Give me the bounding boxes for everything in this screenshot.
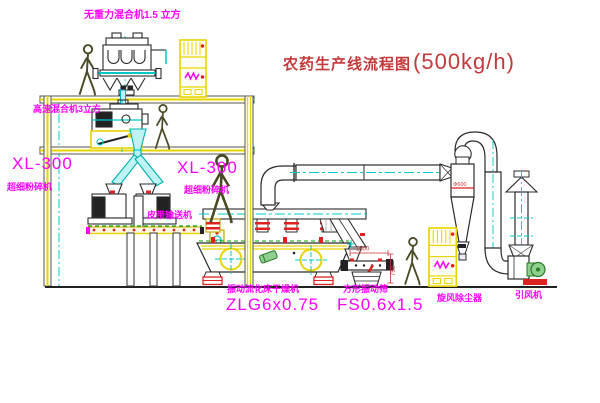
y-chute bbox=[112, 150, 163, 186]
cyclone-diameter-dim: Φ600 bbox=[453, 182, 467, 188]
flow-diagram: Φ600 bbox=[0, 0, 600, 403]
label-high-speed-mixer: 高速混合机3立方 bbox=[33, 105, 101, 114]
title-text: 农药生产线流程图 bbox=[283, 53, 411, 74]
control-cabinet-right bbox=[429, 228, 456, 286]
label-gravity-mixer: 无重力混合机1.5 立方 bbox=[84, 11, 181, 21]
label-fan: 引风机 bbox=[515, 291, 542, 300]
screen-length-dim: 1500 bbox=[356, 247, 370, 253]
fluid-bed-dryer bbox=[197, 209, 369, 285]
person-second-floor bbox=[156, 105, 170, 150]
title-capacity: (500kg/h) bbox=[413, 49, 515, 75]
label-pulverizer-mid-name: 超细粉碎机 bbox=[184, 186, 229, 195]
conveyor-leg bbox=[127, 233, 134, 286]
diagram-title: 农药生产线流程图 (500kg/h) bbox=[283, 49, 515, 75]
conveyor-leg bbox=[173, 233, 180, 286]
cyclone-body bbox=[451, 164, 474, 197]
right-column bbox=[245, 96, 253, 286]
label-dryer-model: ZLG6x0.75 bbox=[226, 296, 319, 313]
label-screen-model: FS0.6x1.5 bbox=[337, 296, 424, 313]
exhaust-elbow bbox=[261, 163, 296, 210]
label-pulverizer-mid-model: XL-300 bbox=[177, 159, 238, 176]
belt-conveyor bbox=[86, 226, 204, 286]
fan-base bbox=[523, 279, 547, 285]
screen-height-dim: 750 bbox=[391, 265, 397, 276]
label-dryer-name: 振动流化床干燥机 bbox=[227, 285, 299, 294]
dryer-foot bbox=[203, 272, 222, 285]
person-near-screen bbox=[405, 238, 420, 285]
vibrating-screen: 1500 750 bbox=[341, 247, 397, 287]
discharge-chute bbox=[134, 196, 143, 228]
gravity-mixer bbox=[93, 33, 166, 104]
label-pulverizer-left-name: 超细粉碎机 bbox=[7, 183, 52, 192]
label-belt-conveyor: 皮带输送机 bbox=[147, 211, 192, 220]
exhaust-duct bbox=[290, 164, 452, 181]
pulverizer-left bbox=[88, 184, 132, 224]
exhaust-stack bbox=[506, 170, 537, 262]
label-screen-name: 方形振动筛 bbox=[343, 285, 388, 294]
draft-fan bbox=[508, 256, 547, 285]
label-pulverizer-left-model: XL-300 bbox=[12, 155, 73, 172]
control-cabinet-top bbox=[180, 40, 206, 97]
screen-deck bbox=[341, 261, 393, 270]
conveyor-leg bbox=[150, 233, 157, 286]
label-cyclone: 旋风除尘器 bbox=[437, 294, 482, 303]
dryer-foot bbox=[314, 272, 333, 285]
